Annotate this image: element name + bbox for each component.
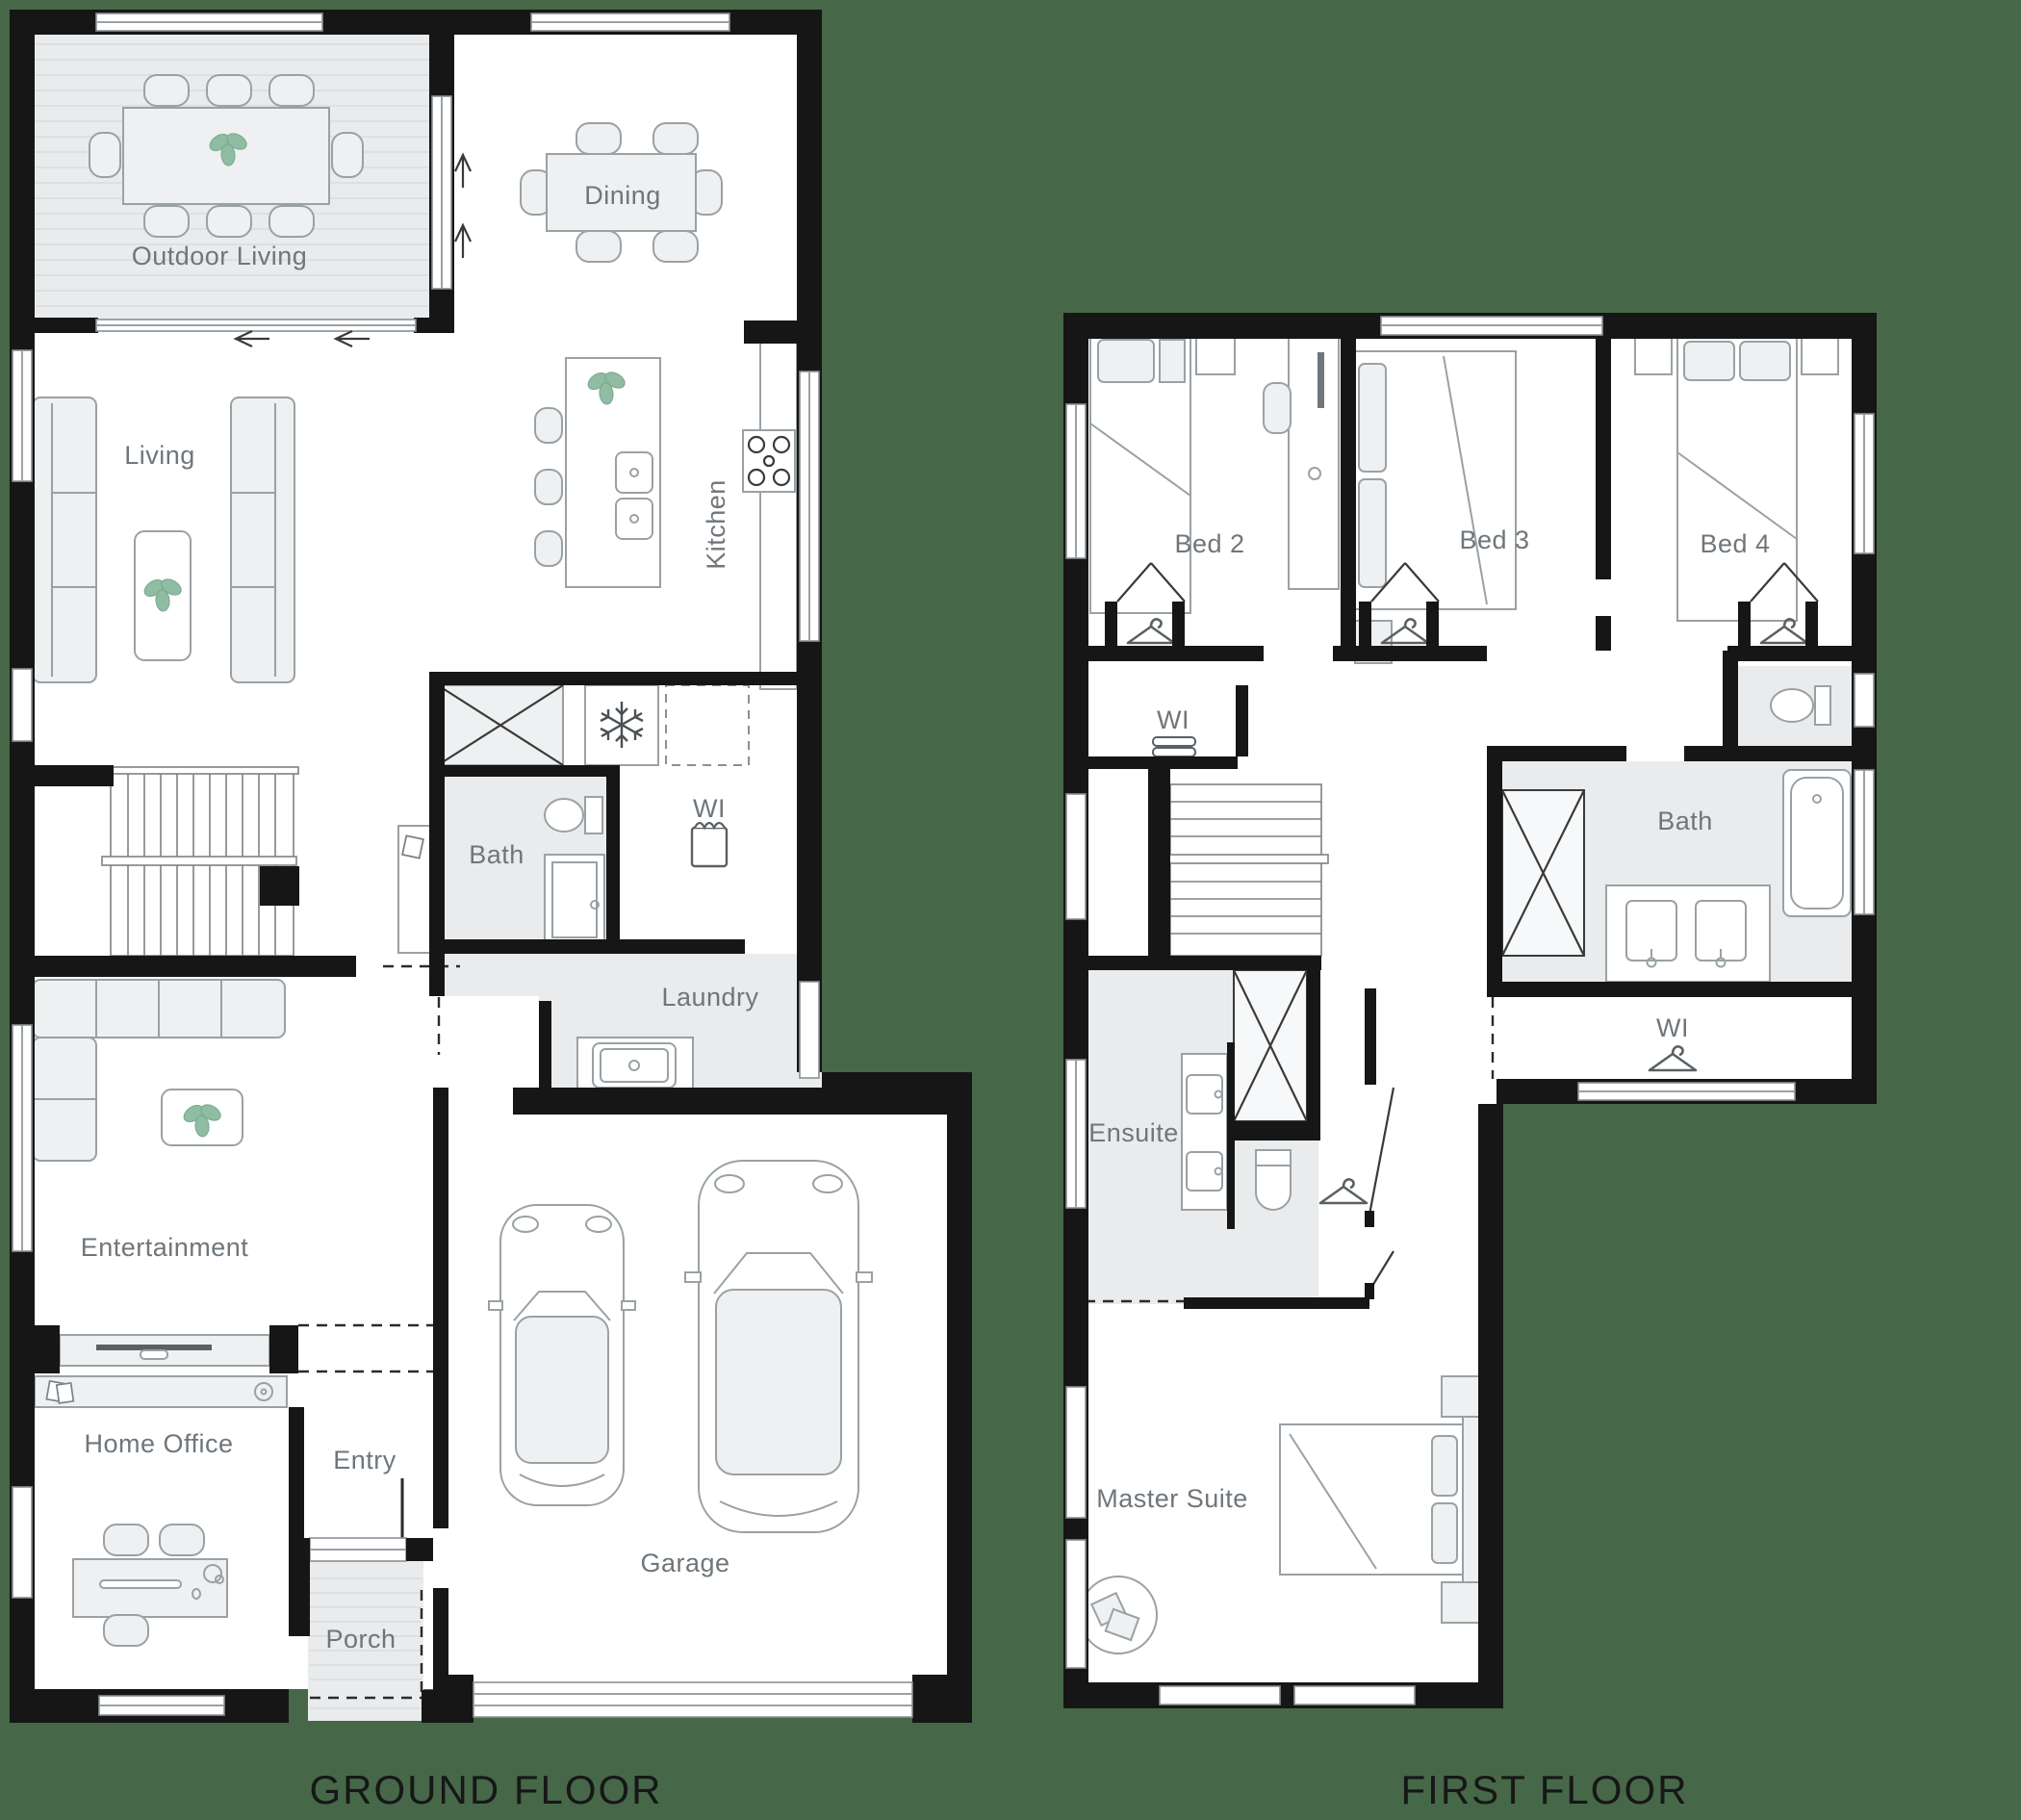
room-porch: Porch xyxy=(308,1538,423,1721)
ground-floor-title: GROUND FLOOR xyxy=(309,1767,662,1812)
hall-cabinet xyxy=(398,826,430,953)
room-label-bed3: Bed 3 xyxy=(1459,525,1529,554)
shopping-bag-icon xyxy=(692,823,727,866)
first-floor-title: FIRST FLOOR xyxy=(1401,1767,1689,1812)
living-coffee-table xyxy=(135,531,191,660)
room-label-bed2: Bed 2 xyxy=(1174,529,1244,558)
desk-chair xyxy=(1264,383,1291,433)
toilet-icon xyxy=(545,797,602,833)
room-laundry: Laundry xyxy=(539,954,822,1094)
room-label-bed4: Bed 4 xyxy=(1700,529,1770,558)
bed-icon xyxy=(1280,1417,1480,1582)
shower-icon xyxy=(1234,970,1307,1121)
room-toilet-first xyxy=(1738,666,1852,746)
monitor-icon xyxy=(1317,352,1324,408)
stool xyxy=(535,531,562,566)
room-bath-first: Bath xyxy=(1502,761,1852,982)
double-vanity xyxy=(1606,885,1770,982)
room-label-laundry: Laundry xyxy=(661,983,758,1012)
living-sofa-left xyxy=(33,397,96,682)
floorplan-svg: Outdoor Living Dining xyxy=(0,0,2021,1820)
toilet-icon xyxy=(1256,1150,1291,1210)
armchair-icon xyxy=(1080,1576,1157,1653)
room-label-entry: Entry xyxy=(333,1446,397,1474)
living-sofa-right xyxy=(231,397,294,682)
first-floor-plan: Bed 2 Bed 3 Bed 4 xyxy=(1063,313,1877,1812)
room-label-home-office: Home Office xyxy=(84,1429,233,1458)
stool xyxy=(535,408,562,443)
ensuite-vanity xyxy=(1182,1054,1227,1210)
stool xyxy=(535,470,562,504)
ground-floor-plan: Outdoor Living Dining xyxy=(10,10,972,1812)
room-outdoor-living: Outdoor Living xyxy=(10,10,429,332)
room-label-bath-first: Bath xyxy=(1657,807,1713,835)
car-icon-small xyxy=(489,1205,635,1505)
room-label-master-suite: Master Suite xyxy=(1096,1484,1248,1513)
room-label-garage: Garage xyxy=(640,1549,729,1577)
cooktop-icon xyxy=(743,430,795,492)
room-label-porch: Porch xyxy=(325,1625,396,1653)
bedside-table xyxy=(1442,1376,1480,1417)
room-label-entertainment: Entertainment xyxy=(81,1233,249,1262)
shower-icon xyxy=(1502,790,1584,956)
office-shelf xyxy=(35,1376,287,1407)
room-label-wi-ground: WI xyxy=(693,794,726,823)
room-living: Living xyxy=(33,397,294,682)
laundry-sink-icon xyxy=(577,1038,693,1093)
room-label-wi-master: WI xyxy=(1656,1013,1689,1042)
bedside-table xyxy=(1442,1582,1480,1623)
entertainment-coffee-table xyxy=(162,1089,243,1145)
bathtub-icon xyxy=(1783,770,1851,916)
room-label-ensuite: Ensuite xyxy=(1088,1118,1179,1147)
stairs-first xyxy=(1163,784,1328,956)
kitchen-bench xyxy=(760,343,797,689)
room-wi-ground: WI xyxy=(692,794,727,866)
floorplan-canvas: Outdoor Living Dining xyxy=(0,0,2021,1820)
room-label-dining: Dining xyxy=(584,181,661,210)
room-label-kitchen: Kitchen xyxy=(702,479,730,570)
toilet-icon xyxy=(1771,686,1830,725)
stairs-ground xyxy=(102,767,298,956)
room-label-wi-landing: WI xyxy=(1157,705,1190,734)
room-label-outdoor-living: Outdoor Living xyxy=(132,242,308,270)
room-label-living: Living xyxy=(124,441,195,470)
room-label-bath-ground: Bath xyxy=(469,840,524,869)
car-icon-large xyxy=(685,1161,872,1532)
